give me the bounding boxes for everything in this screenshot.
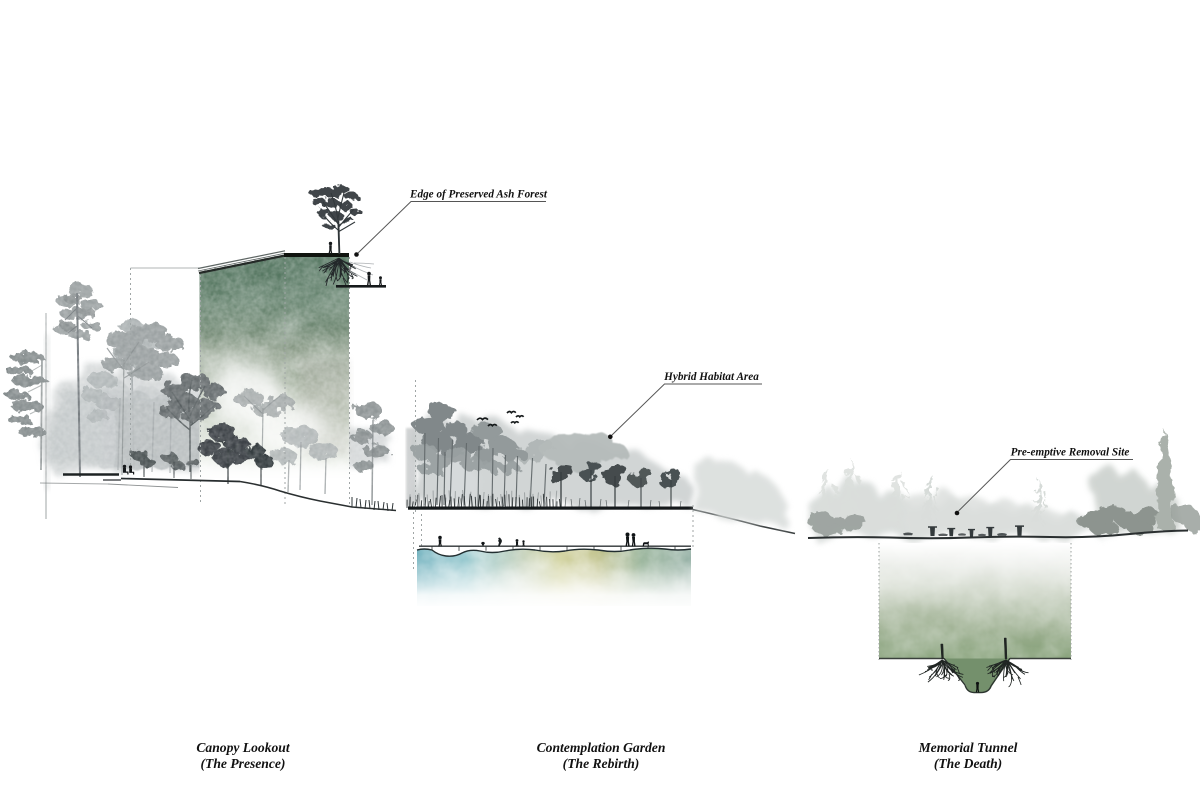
svg-text:Memorial Tunnel: Memorial Tunnel — [918, 740, 1018, 755]
svg-text:(The Presence): (The Presence) — [201, 756, 286, 772]
svg-text:Edge of Preserved Ash Forest: Edge of Preserved Ash Forest — [409, 189, 548, 201]
svg-text:(The Death): (The Death) — [934, 756, 1002, 772]
svg-text:Pre-emptive Removal Site: Pre-emptive Removal Site — [1011, 447, 1130, 459]
svg-text:Contemplation Garden: Contemplation Garden — [537, 740, 666, 755]
svg-text:(The Rebirth): (The Rebirth) — [563, 756, 640, 772]
svg-text:Canopy Lookout: Canopy Lookout — [196, 740, 291, 755]
svg-text:Hybrid Habitat Area: Hybrid Habitat Area — [663, 371, 759, 383]
